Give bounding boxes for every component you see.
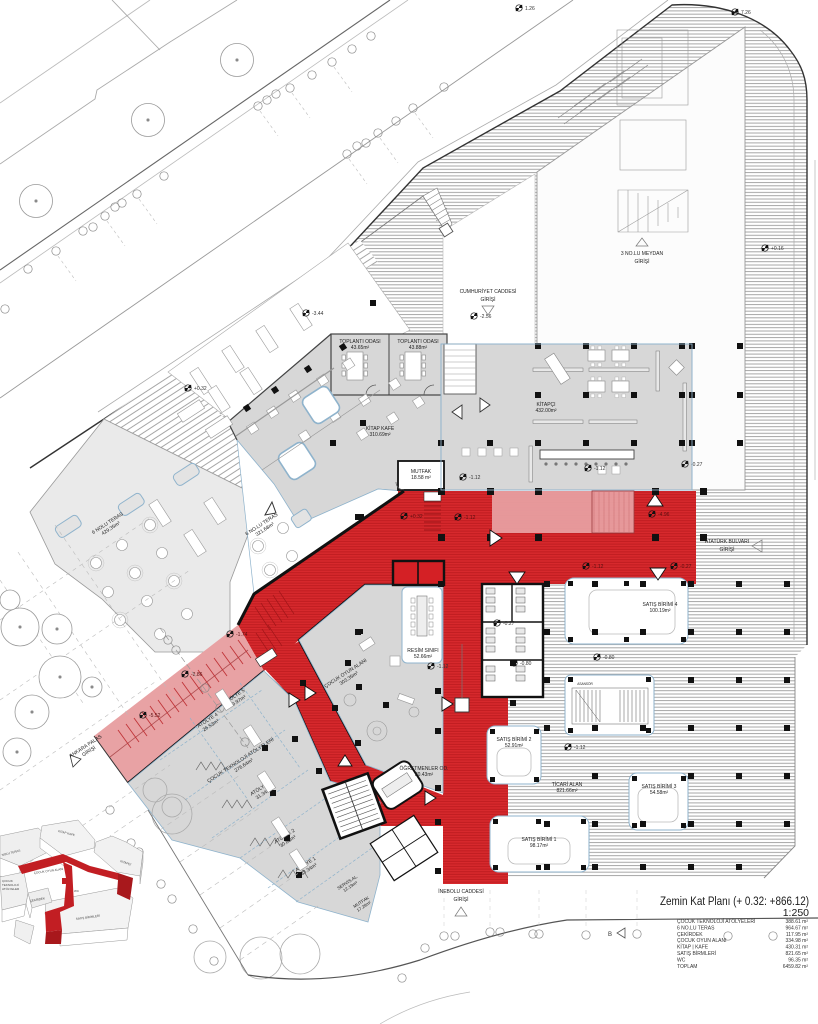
svg-text:310.69m²: 310.69m² [369,432,390,438]
svg-text:CUMHURİYET CADDESİ: CUMHURİYET CADDESİ [460,288,517,295]
svg-text:-0.80: -0.80 [603,655,615,661]
svg-text:RESİM SINIFI: RESİM SINIFI [407,647,438,654]
svg-text:-0.27: -0.27 [691,462,703,468]
svg-text:TİCARİ ALAN: TİCARİ ALAN [552,781,583,788]
svg-text:-0.80: -0.80 [520,661,532,667]
svg-text:GİRİŞİ: GİRİŞİ [453,896,468,903]
svg-text:İNEBOLU CADDESİ: İNEBOLU CADDESİ [438,888,484,895]
svg-text:-1.12: -1.12 [464,515,476,521]
svg-text:GİRİŞİ: GİRİŞİ [719,546,734,553]
svg-text:388.61 m²: 388.61 m² [785,919,808,925]
svg-text:52.66m²: 52.66m² [414,654,433,660]
svg-text:SATIŞ BİRİMİ 1: SATIŞ BİRİMİ 1 [522,836,557,843]
svg-text:-5.52: -5.52 [149,713,161,719]
svg-text:3 NO.LU MEYDAN: 3 NO.LU MEYDAN [621,251,664,257]
svg-text:821.65 m²: 821.65 m² [785,951,808,957]
svg-text:SATIŞ BİRİMİ 2: SATIŞ BİRİMİ 2 [497,736,532,743]
svg-text:52.91m²: 52.91m² [505,743,524,749]
svg-text:-3.44: -3.44 [312,311,324,317]
svg-text:-1.74: -1.74 [236,632,248,638]
svg-text:334.98 m²: 334.98 m² [785,938,808,944]
svg-text:+0.32: +0.32 [410,514,423,520]
svg-text:1.26: 1.26 [525,6,535,12]
svg-text:+0.32: +0.32 [194,386,207,392]
svg-text:821.66m²: 821.66m² [556,788,577,794]
svg-text:+0.16: +0.16 [771,246,784,252]
svg-text:54.58m²: 54.58m² [650,790,669,796]
svg-text:-2.56: -2.56 [480,314,492,320]
svg-text:WC: WC [74,889,80,893]
svg-text:430.31 m²: 430.31 m² [785,945,808,951]
svg-text:432.00m²: 432.00m² [535,408,556,414]
svg-text:-0.27: -0.27 [503,621,515,627]
svg-text:43.65m²: 43.65m² [351,345,370,351]
svg-text:GİRİŞİ: GİRİŞİ [480,296,495,303]
svg-text:6459.82 m²: 6459.82 m² [783,964,809,970]
svg-text:ATATÜRK BULVARI: ATATÜRK BULVARI [705,538,749,545]
svg-text:Zemin Kat Planı (+ 0.32: +866.: Zemin Kat Planı (+ 0.32: +866.12) [660,894,809,908]
svg-text:SATIŞ BİRMLERİ: SATIŞ BİRMLERİ [677,950,716,957]
svg-text:1:250: 1:250 [783,907,809,919]
svg-text:ÇOCUK TEKNOLOJİ ATÖLYELERİ: ÇOCUK TEKNOLOJİ ATÖLYELERİ [677,918,755,925]
svg-text:6 NO.LU TERAS: 6 NO.LU TERAS [677,925,715,931]
svg-text:ÇOCUK OYUN ALANI: ÇOCUK OYUN ALANI [677,938,726,944]
svg-text:964.67 m²: 964.67 m² [785,925,808,931]
svg-text:96.35 m²: 96.35 m² [788,957,808,963]
svg-text:-4.96: -4.96 [658,512,670,518]
svg-text:-1.12: -1.12 [594,466,606,472]
svg-text:-1.12: -1.12 [437,664,449,670]
svg-text:SATIŞ BİRİMİ 3: SATIŞ BİRİMİ 3 [642,783,677,790]
svg-text:ATÖLYELER: ATÖLYELER [2,887,20,891]
svg-text:KİTAPÇI: KİTAPÇI [536,401,555,408]
svg-text:100.19m²: 100.19m² [649,608,670,614]
svg-text:18.58 m²: 18.58 m² [411,475,431,481]
svg-text:-1.12: -1.12 [592,564,604,570]
svg-text:KİTAP KAFE: KİTAP KAFE [366,425,395,432]
svg-text:43.88m²: 43.88m² [409,345,428,351]
svg-text:SATIŞ BİRİMİ 4: SATIŞ BİRİMİ 4 [643,601,678,608]
svg-text:-0.27: -0.27 [680,564,692,570]
svg-text:117.95 m²: 117.95 m² [786,932,808,938]
svg-text:-1.12: -1.12 [469,475,481,481]
svg-text:WC: WC [677,957,686,963]
svg-text:KİTAP | KAFE: KİTAP | KAFE [677,944,709,951]
svg-text:30.43m²: 30.43m² [415,772,434,778]
svg-text:98.17m²: 98.17m² [530,843,549,849]
svg-text:7.26: 7.26 [741,10,751,16]
svg-text:-1.12: -1.12 [574,745,586,751]
svg-text:TOPLAM: TOPLAM [677,964,697,970]
svg-text:GİRİŞİ: GİRİŞİ [634,258,649,265]
svg-text:ASANSÖR: ASANSÖR [577,682,593,686]
svg-text:B: B [608,932,612,938]
svg-text:ÇEKİRDEK: ÇEKİRDEK [677,931,703,938]
svg-text:ÖĞRETMENLER OD.: ÖĞRETMENLER OD. [400,765,449,772]
